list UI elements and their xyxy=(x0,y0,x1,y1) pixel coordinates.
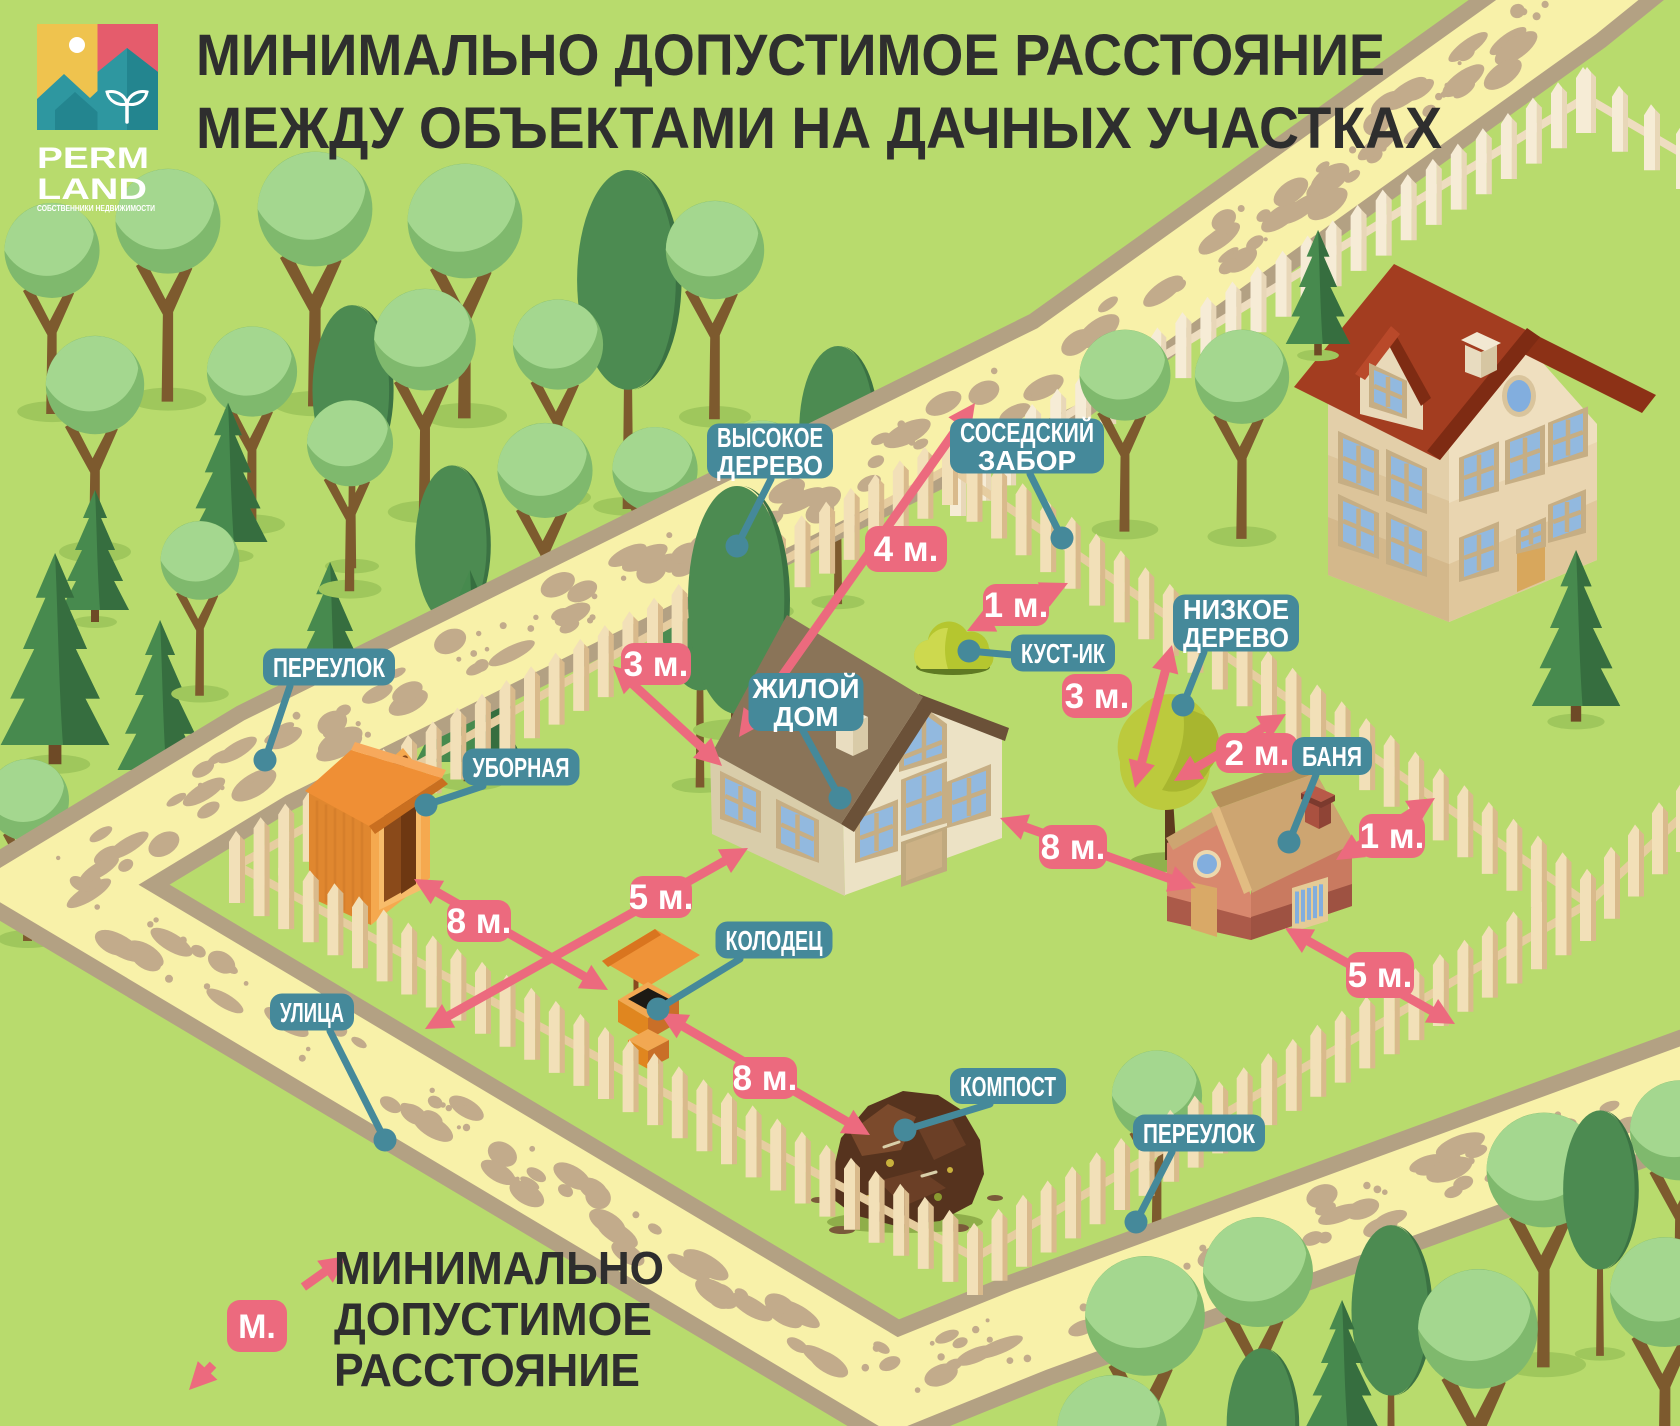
svg-text:8 м.: 8 м. xyxy=(733,1059,798,1098)
svg-text:1 м.: 1 м. xyxy=(984,586,1049,625)
svg-text:УБОРНАЯ: УБОРНАЯ xyxy=(473,752,570,783)
svg-text:ПЕРЕУЛОК: ПЕРЕУЛОК xyxy=(1143,1118,1256,1149)
svg-text:1 м.: 1 м. xyxy=(1360,817,1425,856)
svg-text:РАССТОЯНИЕ: РАССТОЯНИЕ xyxy=(334,1344,640,1396)
svg-text:ДЕРЕВО: ДЕРЕВО xyxy=(1183,622,1289,653)
svg-text:5 м.: 5 м. xyxy=(1348,956,1413,995)
svg-text:LAND: LAND xyxy=(37,173,147,206)
svg-text:4 м.: 4 м. xyxy=(874,530,939,569)
svg-text:8 м.: 8 м. xyxy=(447,902,512,941)
svg-text:СОБСТВЕННИКИ НЕДВИЖИМОСТИ: СОБСТВЕННИКИ НЕДВИЖИМОСТИ xyxy=(37,204,155,213)
svg-text:БАНЯ: БАНЯ xyxy=(1302,741,1362,772)
svg-text:МИНИМАЛЬНО ДОПУСТИМОЕ РАССТОЯН: МИНИМАЛЬНО ДОПУСТИМОЕ РАССТОЯНИЕ xyxy=(196,23,1385,88)
svg-text:ЖИЛОЙ: ЖИЛОЙ xyxy=(752,672,860,704)
svg-text:КОМПОСТ: КОМПОСТ xyxy=(960,1071,1056,1102)
svg-text:УЛИЦА: УЛИЦА xyxy=(280,997,344,1028)
svg-text:МЕЖДУ ОБЪЕКТАМИ НА ДАЧНЫХ УЧАС: МЕЖДУ ОБЪЕКТАМИ НА ДАЧНЫХ УЧАСТКАХ xyxy=(196,96,1442,161)
svg-text:М.: М. xyxy=(238,1308,276,1346)
svg-text:5 м.: 5 м. xyxy=(629,878,694,917)
svg-text:КУСТ-ИК: КУСТ-ИК xyxy=(1021,638,1106,669)
svg-text:ДЕРЕВО: ДЕРЕВО xyxy=(717,450,823,481)
svg-text:PERM: PERM xyxy=(37,142,149,175)
svg-text:ЗАБОР: ЗАБОР xyxy=(978,445,1076,476)
svg-text:ДОМ: ДОМ xyxy=(773,701,838,732)
svg-text:3 м.: 3 м. xyxy=(1065,677,1130,716)
svg-text:ДОПУСТИМОЕ: ДОПУСТИМОЕ xyxy=(334,1293,652,1345)
svg-text:ПЕРЕУЛОК: ПЕРЕУЛОК xyxy=(273,652,386,683)
svg-text:3 м.: 3 м. xyxy=(624,645,689,684)
svg-text:МИНИМАЛЬНО: МИНИМАЛЬНО xyxy=(334,1242,664,1294)
svg-text:КОЛОДЕЦ: КОЛОДЕЦ xyxy=(726,925,823,956)
svg-text:8 м.: 8 м. xyxy=(1041,828,1106,867)
svg-text:НИЗКОЕ: НИЗКОЕ xyxy=(1183,594,1289,625)
svg-text:2 м.: 2 м. xyxy=(1225,734,1290,773)
svg-text:СОСЕДСКИЙ: СОСЕДСКИЙ xyxy=(960,416,1094,448)
svg-text:ВЫСОКОЕ: ВЫСОКОЕ xyxy=(717,422,823,453)
